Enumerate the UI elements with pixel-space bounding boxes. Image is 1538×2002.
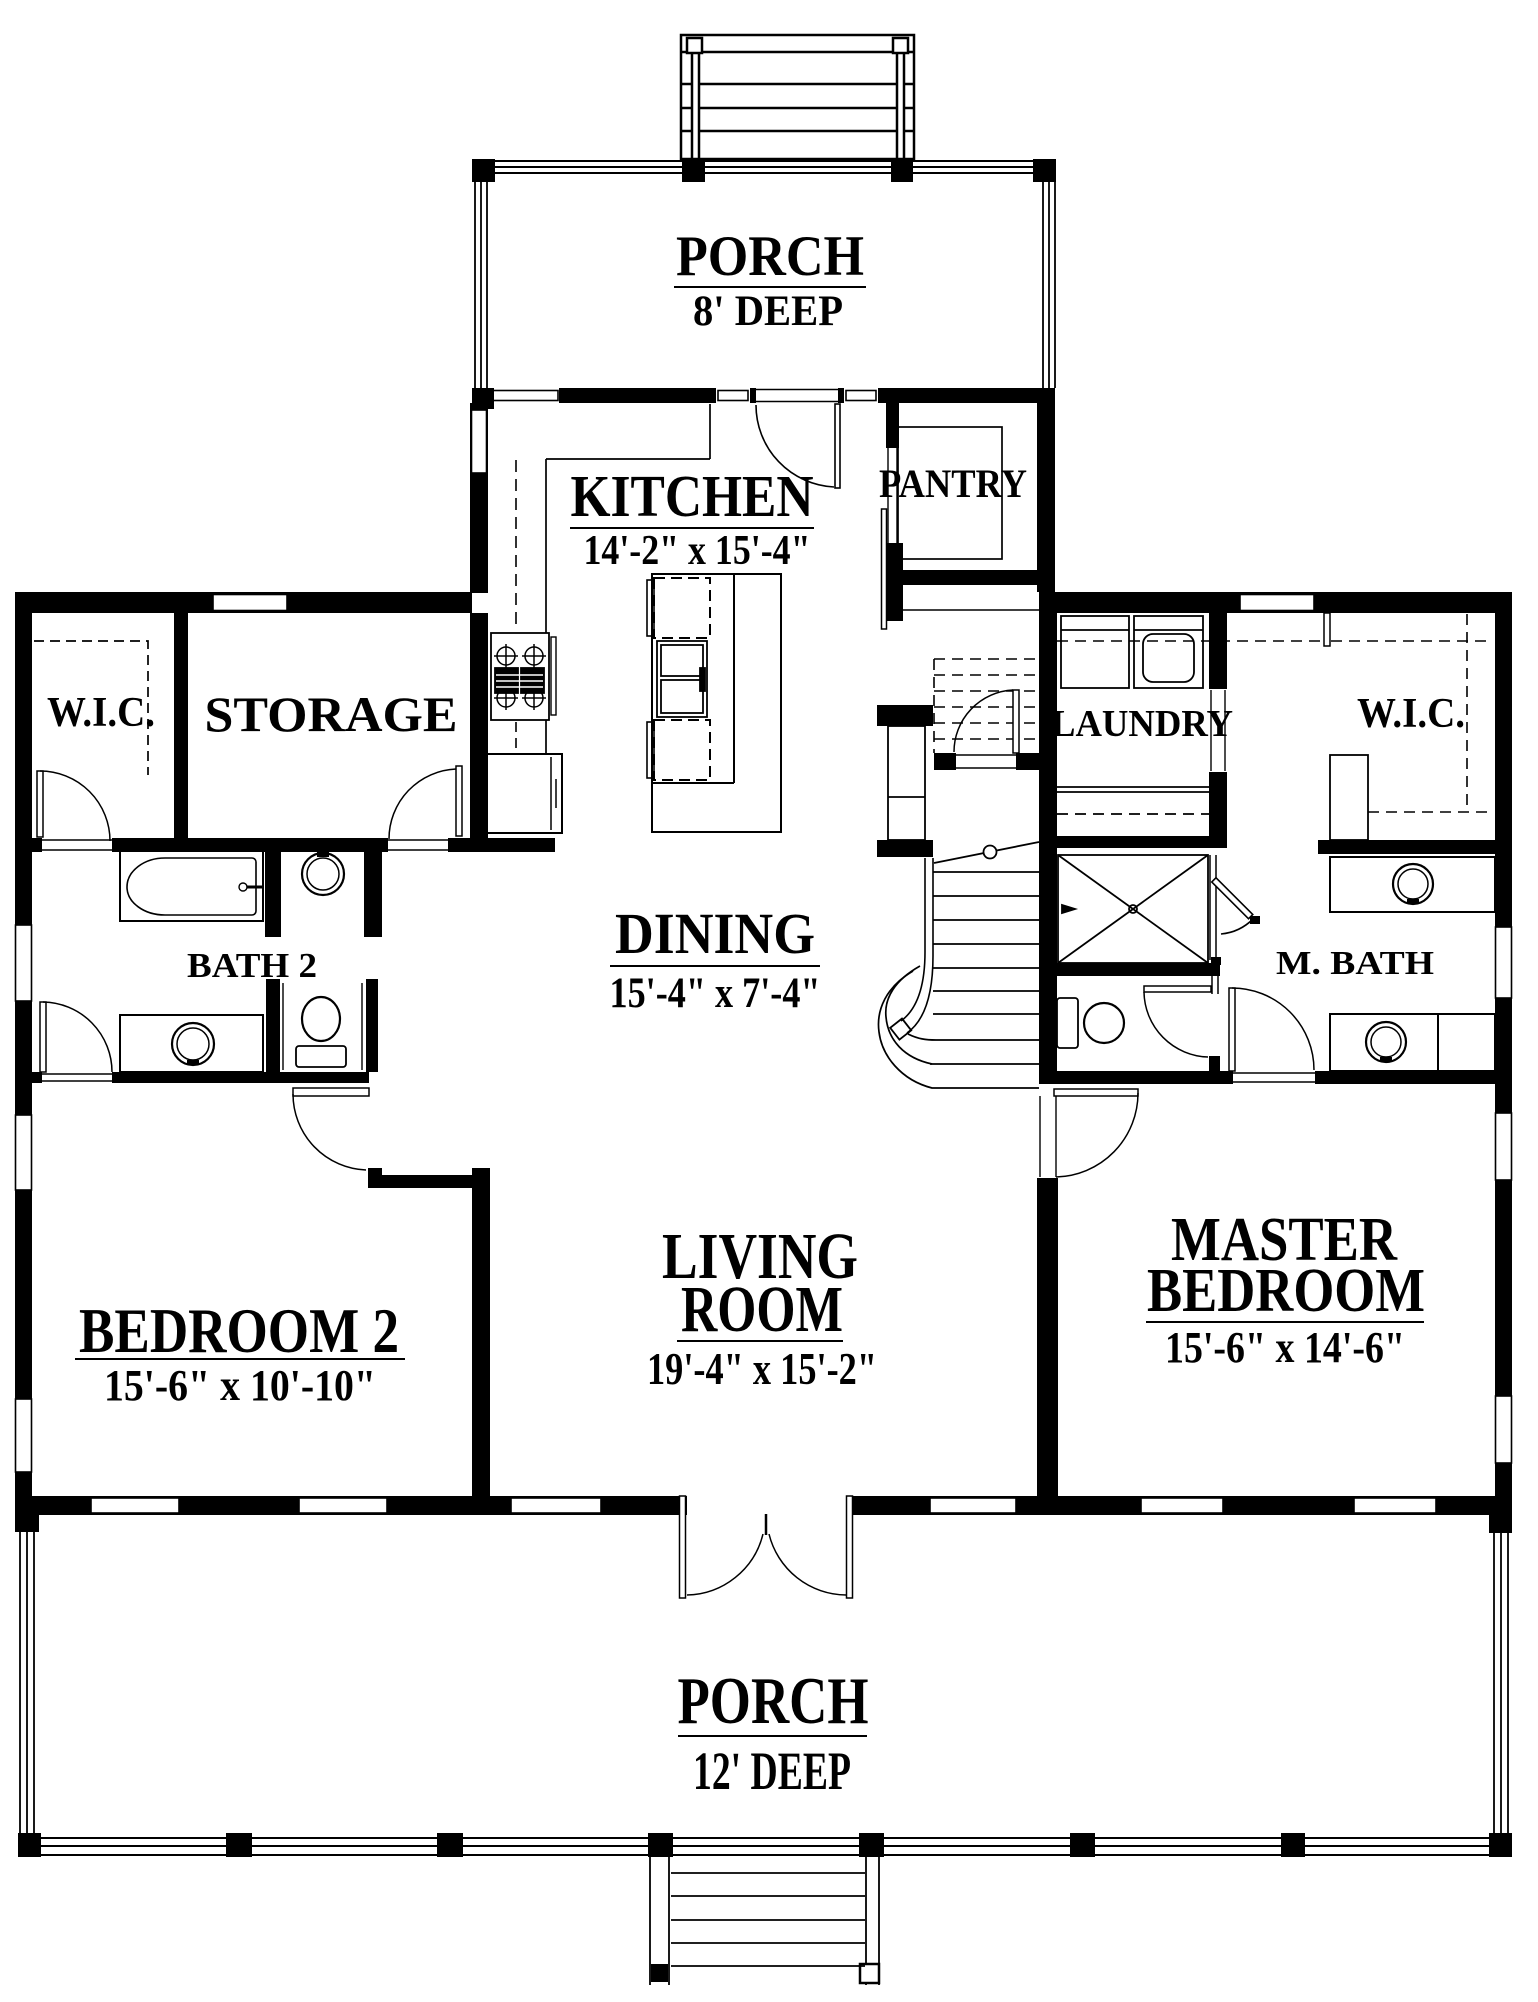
svg-text:M. BATH: M. BATH: [1276, 945, 1434, 982]
svg-text:PANTRY: PANTRY: [879, 461, 1027, 506]
svg-text:BATH 2: BATH 2: [187, 946, 317, 985]
svg-text:12' DEEP: 12' DEEP: [693, 1741, 851, 1801]
svg-text:STORAGE: STORAGE: [205, 686, 458, 742]
svg-text:BEDROOM 2: BEDROOM 2: [79, 1295, 399, 1366]
svg-text:15'-6" x 14'-6": 15'-6" x 14'-6": [1165, 1323, 1405, 1372]
svg-text:PORCH: PORCH: [676, 225, 864, 288]
svg-text:19'-4" x 15'-2": 19'-4" x 15'-2": [647, 1343, 877, 1394]
svg-text:W.I.C.: W.I.C.: [1357, 691, 1465, 737]
svg-text:DINING: DINING: [615, 901, 815, 966]
svg-text:BEDROOM: BEDROOM: [1147, 1257, 1425, 1325]
svg-text:KITCHEN: KITCHEN: [571, 463, 814, 529]
svg-text:PORCH: PORCH: [678, 1664, 869, 1738]
svg-text:ROOM: ROOM: [681, 1273, 843, 1346]
svg-text:W.I.C.: W.I.C.: [47, 690, 155, 736]
svg-text:15'-4" x 7'-4": 15'-4" x 7'-4": [610, 970, 821, 1017]
svg-text:15'-6" x 10'-10": 15'-6" x 10'-10": [104, 1361, 376, 1410]
svg-text:14'-2" x 15'-4": 14'-2" x 15'-4": [584, 528, 811, 574]
svg-text:8' DEEP: 8' DEEP: [693, 288, 843, 335]
svg-text:LAUNDRY: LAUNDRY: [1051, 703, 1233, 745]
